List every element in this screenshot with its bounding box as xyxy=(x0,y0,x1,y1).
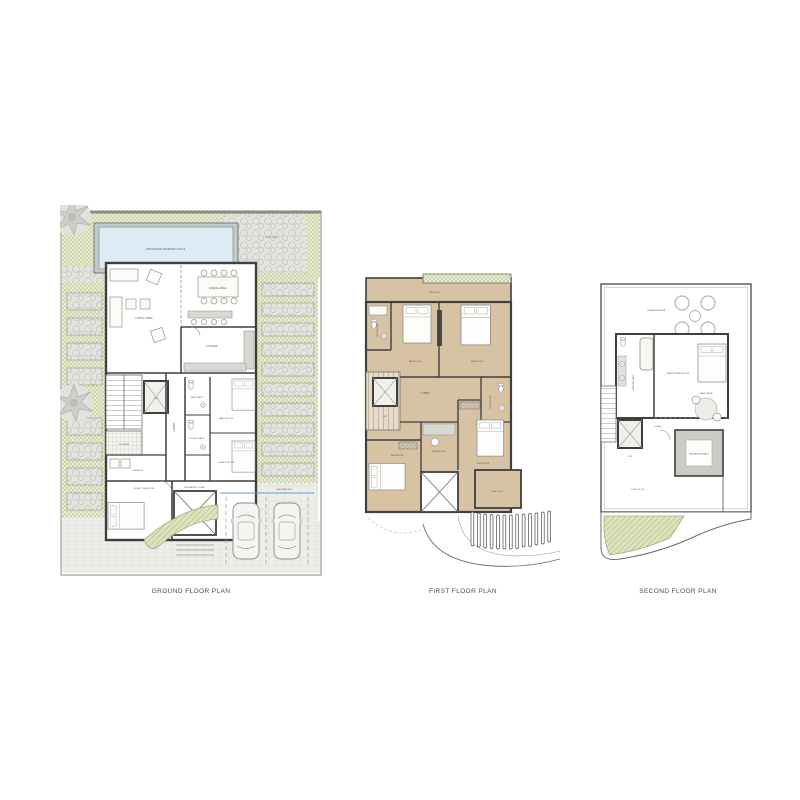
balcony-label: BALCONY xyxy=(429,291,441,294)
bathroom-label: BATHROOM xyxy=(489,395,492,408)
guest-bath-label: GUEST BATH xyxy=(190,437,205,440)
laundry-label: LAUNDRY xyxy=(132,469,144,472)
bathroom-label: BATHROOM xyxy=(376,323,379,336)
car-icon xyxy=(231,503,262,559)
ground-floor-plan-drawing: PROPOSED SWIMMING POOL POOL DECK xyxy=(60,205,322,577)
balcony-label: BALCONY xyxy=(492,490,504,493)
lobby-label: LOBBY xyxy=(420,391,429,395)
boundary-wall-top xyxy=(61,211,321,214)
void-cross xyxy=(421,472,458,512)
second-floor-plan-drawing: TERRACE AREA MASTER BATH MASTER BEDROOM xyxy=(598,278,758,570)
car-icon xyxy=(272,503,303,559)
bedroom-label: BEDROOM xyxy=(409,361,421,363)
ground-floor-title: GROUND FLOOR PLAN xyxy=(60,588,322,595)
staircase xyxy=(106,375,142,429)
bedroom-label: BEDROOM xyxy=(477,463,489,465)
lobby-label: LOBBY xyxy=(654,426,662,428)
bathroom-label: BATHROOM xyxy=(432,450,445,453)
bedroom-label: BEDROOM xyxy=(391,455,403,457)
dressing-label: MASTER DRESSING xyxy=(689,453,709,456)
maid-room-label: MAID ROOM xyxy=(219,417,233,420)
first-floor-plan-drawing: BALCONY BATHROOM BEDROOM BEDROOM xyxy=(363,272,563,572)
lift: LIFT xyxy=(144,381,168,413)
lobby-label: LOBBY xyxy=(172,422,176,431)
flat-roof-label: FLAT ROOF xyxy=(632,488,646,491)
guest-bedroom-label: GUEST BEDROOM xyxy=(134,488,155,490)
master-bath-label: MASTER BATH xyxy=(632,373,635,390)
kitchen-label: KITCHEN xyxy=(206,344,218,348)
louver-canopy xyxy=(368,511,560,566)
balcony-top: BALCONY xyxy=(366,274,511,302)
roof-apron xyxy=(601,512,751,560)
staircase xyxy=(601,386,616,442)
guest-room-label: GUEST ROOM xyxy=(218,462,234,464)
lift-label: LIFT xyxy=(383,416,388,418)
pool-label: PROPOSED SWIMMING POOL xyxy=(146,247,187,251)
room-powder: POWDER xyxy=(106,431,142,455)
family-label: FAMILY AREA xyxy=(700,392,713,395)
lift-label: LIFT xyxy=(154,398,159,400)
first-floor-title: FIRST FLOOR PLAN xyxy=(363,588,563,595)
pool-deck-label: POOL DECK xyxy=(265,237,279,239)
bedroom-label: BEDROOM xyxy=(471,361,483,363)
balcony-rear xyxy=(475,470,521,508)
powder-label: POWDER xyxy=(119,444,130,446)
lift-label: LIFT xyxy=(628,456,633,458)
terrace-label: TERRACE AREA xyxy=(647,309,666,312)
dining-label: DINING AREA xyxy=(209,286,227,290)
master-bedroom-label: MASTER BEDROOM xyxy=(667,372,690,375)
parking-label: CAR PARKING xyxy=(276,488,292,491)
maid-bath-label: MAID BATH xyxy=(191,396,204,399)
living-label: LIVING AREA xyxy=(135,316,153,320)
entrance-label: ENTRANCE LOBBY xyxy=(184,486,206,489)
drawing-sheet: PROPOSED SWIMMING POOL POOL DECK xyxy=(0,0,800,800)
second-floor-title: SECOND FLOOR PLAN xyxy=(598,588,758,595)
